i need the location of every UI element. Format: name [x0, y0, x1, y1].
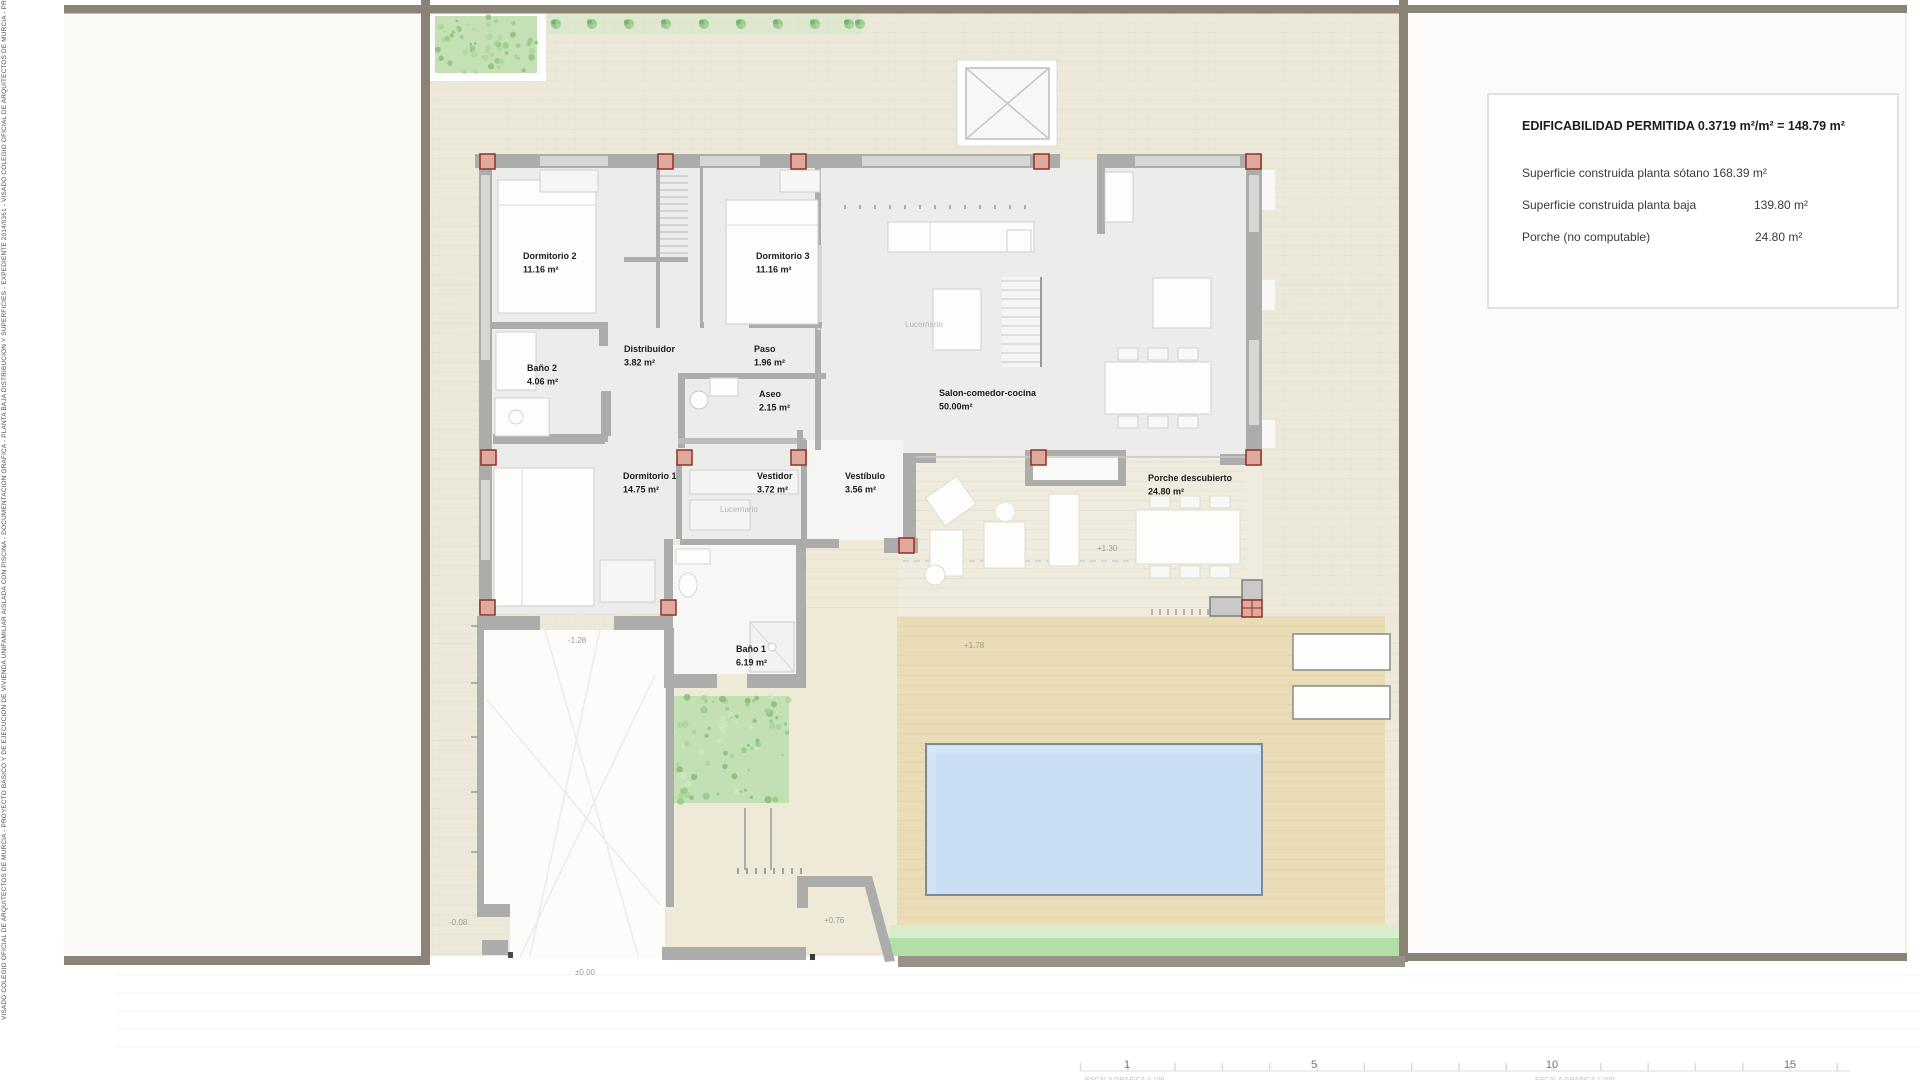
svg-text:24.80 m²: 24.80 m² — [1148, 487, 1184, 497]
svg-text:11.16 m²: 11.16 m² — [523, 265, 559, 275]
svg-text:50.00m²: 50.00m² — [939, 402, 973, 412]
svg-text:-0.08: -0.08 — [449, 918, 468, 927]
svg-text:VISADO COLEGIO OFICIAL DE ARQU: VISADO COLEGIO OFICIAL DE ARQUITECTOS DE… — [1, 0, 8, 1020]
svg-text:Superficie construida planta s: Superficie construida planta sótano 168.… — [1522, 166, 1767, 180]
svg-text:10: 10 — [1546, 1059, 1558, 1071]
svg-text:Vestidor: Vestidor — [757, 471, 793, 481]
svg-text:+1.30: +1.30 — [1097, 544, 1118, 553]
svg-text:139.80 m²: 139.80 m² — [1754, 198, 1808, 212]
svg-text:±0.00: ±0.00 — [575, 968, 596, 977]
svg-text:4.06 m²: 4.06 m² — [527, 377, 558, 387]
svg-text:EDIFICABILIDAD PERMITIDA 0.371: EDIFICABILIDAD PERMITIDA 0.3719 m²/m² = … — [1522, 119, 1845, 133]
svg-text:Salon-comedor-cocina: Salon-comedor-cocina — [939, 388, 1037, 398]
svg-text:3.72 m²: 3.72 m² — [757, 485, 788, 495]
svg-text:Porche (no computable): Porche (no computable) — [1522, 230, 1650, 244]
svg-text:Baño 1: Baño 1 — [736, 644, 766, 654]
svg-text:Lucernario: Lucernario — [905, 320, 943, 329]
svg-text:14.75 m²: 14.75 m² — [623, 485, 659, 495]
svg-text:+0.76: +0.76 — [824, 916, 845, 925]
svg-text:Aseo: Aseo — [759, 389, 782, 399]
svg-text:Porche descubierto: Porche descubierto — [1148, 473, 1233, 483]
svg-text:-1.28: -1.28 — [568, 636, 587, 645]
svg-text:Paso: Paso — [754, 344, 776, 354]
svg-text:Dormitorio 2: Dormitorio 2 — [523, 251, 577, 261]
svg-text:Vestíbulo: Vestíbulo — [845, 471, 886, 481]
svg-text:11.16 m²: 11.16 m² — [756, 265, 792, 275]
svg-text:2.15 m²: 2.15 m² — [759, 403, 790, 413]
svg-text:Distribuidor: Distribuidor — [624, 344, 675, 354]
svg-text:3.82 m²: 3.82 m² — [624, 358, 655, 368]
svg-text:1.96 m²: 1.96 m² — [754, 358, 785, 368]
svg-text:1: 1 — [1124, 1059, 1130, 1071]
svg-text:+1.78: +1.78 — [964, 641, 985, 650]
svg-text:5: 5 — [1311, 1059, 1317, 1071]
svg-text:Lucernario: Lucernario — [720, 505, 758, 514]
svg-text:3.56 m²: 3.56 m² — [845, 485, 876, 495]
svg-text:6.19 m²: 6.19 m² — [736, 658, 767, 668]
svg-text:Dormitorio 1: Dormitorio 1 — [623, 471, 677, 481]
svg-text:15: 15 — [1784, 1059, 1796, 1071]
svg-text:Superficie construida planta b: Superficie construida planta baja — [1522, 198, 1696, 212]
svg-text:Dormitorio 3: Dormitorio 3 — [756, 251, 810, 261]
svg-text:Baño 2: Baño 2 — [527, 363, 557, 373]
svg-text:24.80 m²: 24.80 m² — [1755, 230, 1802, 244]
